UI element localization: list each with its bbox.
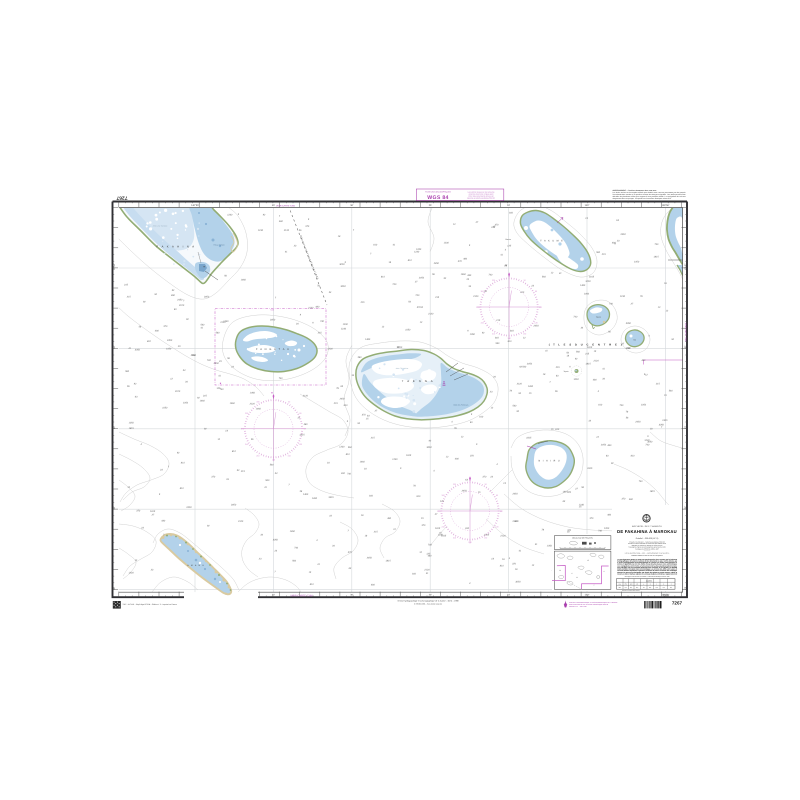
svg-text:215: 215 [123,283,129,286]
svg-text:2450: 2450 [512,493,519,496]
svg-text:1230: 1230 [341,327,347,330]
svg-text:1050: 1050 [634,260,640,263]
svg-text:1815: 1815 [129,427,135,430]
svg-text:240: 240 [442,525,445,528]
svg-text:1050: 1050 [405,329,411,332]
svg-text:215: 215 [360,301,366,304]
svg-text:DE FAKAHINA À MAROKAU: DE FAKAHINA À MAROKAU [617,529,677,534]
svg-text:1460: 1460 [461,273,467,276]
svg-text:215: 215 [555,366,561,369]
svg-text:3050: 3050 [341,285,347,288]
svg-text:1460: 1460 [365,338,371,341]
svg-text:7267: 7267 [116,195,127,201]
svg-text:3050: 3050 [625,347,631,350]
svg-text:2450: 2450 [620,233,627,236]
svg-text:2120: 2120 [174,390,181,393]
svg-text:1050: 1050 [162,406,168,409]
svg-text:215: 215 [370,436,376,439]
svg-text:0,2: 0,2 [663,587,665,589]
svg-text:210: 210 [256,454,259,457]
svg-text:90: 90 [500,510,502,513]
svg-text:© SHOM 1998 – Tous droits rése: © SHOM 1998 – Tous droits réservés [414,602,442,605]
svg-text:F A N G A T A U: F A N G A T A U [256,348,290,351]
svg-text:1815: 1815 [587,467,593,470]
svg-text:1230: 1230 [392,458,398,461]
svg-text:215: 215 [495,319,501,322]
svg-text:2120: 2120 [427,312,434,315]
svg-text:Z0: Z0 [636,584,638,586]
svg-text:VOIR CARTE 7266: VOIR CARTE 7266 [290,594,313,597]
svg-text:16°: 16° [683,345,686,349]
svg-text:Service hydrographique et océa: Service hydrographique et océanographiqu… [398,600,459,603]
svg-text:1815: 1815 [587,346,593,349]
svg-text:15°50': 15°50' [113,263,116,270]
svg-text:2450: 2450 [176,298,183,301]
svg-text:2120: 2120 [178,304,185,307]
svg-text:1815: 1815 [650,490,656,493]
svg-text:3050: 3050 [135,349,141,352]
svg-text:T A E N G A: T A E N G A [402,379,434,383]
svg-text:16°: 16° [113,345,116,349]
svg-text:2450: 2450 [213,362,220,365]
svg-text:1460: 1460 [312,497,318,500]
svg-text:1460: 1460 [256,408,262,411]
svg-text:60: 60 [535,290,537,293]
svg-text:2120: 2120 [516,383,523,386]
svg-text:A M A N U: A M A N U [187,564,205,567]
svg-text:1815: 1815 [589,276,595,279]
svg-text:1230: 1230 [444,241,450,244]
svg-text:210: 210 [453,537,456,540]
svg-text:140°: 140° [585,204,590,207]
svg-text:215: 215 [373,531,379,534]
svg-text:215: 215 [655,382,661,385]
svg-text:1050: 1050 [397,346,403,349]
svg-text:1050: 1050 [641,403,647,406]
svg-text:1460: 1460 [360,461,366,464]
svg-text:210: 210 [492,333,495,336]
svg-text:215: 215 [126,296,132,299]
svg-text:30: 30 [485,483,487,486]
svg-text:POSITIONS GÉOGRAPHIQUES: POSITIONS GÉOGRAPHIQUES [425,190,451,193]
svg-text:Passe Tehere: Passe Tehere [213,244,224,247]
svg-text:1815: 1815 [435,527,441,530]
svg-text:2450: 2450 [634,420,641,423]
svg-text:3050: 3050 [647,441,653,444]
svg-text:————: ———— [644,550,651,552]
svg-text:1050: 1050 [604,527,610,530]
svg-text:1815: 1815 [586,363,592,366]
svg-text:7267 – INT 605 – Dépôt légal 3: 7267 – INT 605 – Dépôt légal 372-98 – Éd… [123,603,177,606]
svg-text:270: 270 [476,306,479,309]
svg-text:215: 215 [333,402,339,405]
svg-text:0,6: 0,6 [649,587,651,589]
svg-text:215: 215 [240,470,246,473]
svg-text:15°50': 15°50' [683,264,686,271]
svg-text:3050: 3050 [626,322,632,325]
svg-text:30: 30 [288,401,290,404]
svg-text:0,3: 0,3 [636,587,638,589]
svg-text:PM: PM [625,584,627,586]
svg-text:2120: 2120 [249,402,256,405]
svg-text:1050: 1050 [585,280,591,283]
svg-text:2120: 2120 [307,307,314,310]
svg-text:1460: 1460 [230,402,236,405]
svg-text:1230: 1230 [579,504,585,507]
svg-text:1050: 1050 [183,402,189,405]
svg-text:60: 60 [496,494,498,497]
svg-text:330: 330 [256,401,259,404]
svg-text:12: 12 [643,587,645,589]
svg-text:0,1: 0,1 [630,587,632,589]
svg-text:2450: 2450 [190,354,197,357]
svg-text:T A K U M E: T A K U M E [540,240,563,243]
svg-text:Heures et hauteurs des marées: Heures et hauteurs des marées [622,590,640,592]
svg-text:VOIR CARTE 7265: VOIR CARTE 7265 [276,204,296,207]
svg-text:1815: 1815 [662,419,668,422]
svg-text:270: 270 [437,510,440,513]
svg-text:90: 90 [539,306,541,309]
svg-text:2450: 2450 [339,397,346,400]
svg-text:3050: 3050 [273,538,279,541]
svg-text:215: 215 [317,332,323,335]
svg-text:60: 60 [299,412,301,415]
svg-text:BM: BM [630,584,632,586]
svg-text:1230: 1230 [327,348,333,351]
svg-text:1460: 1460 [584,292,590,295]
svg-text:1460: 1460 [303,493,309,496]
svg-text:7268: 7268 [270,309,274,312]
svg-text:120: 120 [495,525,498,528]
svg-text:1460: 1460 [290,530,296,533]
svg-text:2120: 2120 [283,229,290,232]
svg-text:240: 240 [481,321,484,324]
svg-text:215: 215 [601,253,607,256]
svg-text:2450: 2450 [185,506,192,509]
svg-text:1050: 1050 [470,333,476,336]
svg-text:3050: 3050 [231,503,237,506]
svg-text:2450: 2450 [366,557,373,560]
svg-text:300: 300 [245,412,248,415]
svg-text:330: 330 [492,279,495,282]
svg-text:ARCHIPEL DES TUAMOTU: ARCHIPEL DES TUAMOTU [632,525,662,528]
svg-text:F A K A H I N A: F A K A H I N A [157,246,196,249]
svg-text:1230: 1230 [620,295,626,298]
svg-text:Raroia: Raroia [505,238,511,241]
svg-text:120: 120 [299,443,302,446]
svg-text:1460: 1460 [528,385,534,388]
svg-text:2450: 2450 [461,489,468,492]
svg-text:120: 120 [534,321,537,324]
svg-text:N I H I R U: N I H I R U [538,459,560,462]
svg-text:150: 150 [523,333,526,336]
svg-text:3050: 3050 [515,581,521,584]
svg-text:2120: 2120 [593,359,600,362]
svg-text:150: 150 [484,537,487,540]
svg-text:( Î L E S D U C E N T R: ( Î L E S D U C E N T R E ) [549,342,623,346]
svg-text:1230: 1230 [223,320,229,323]
svg-text:270: 270 [241,428,244,431]
svg-text:1815: 1815 [328,496,334,499]
svg-text:Échelle 1 : 300 000 (15° S): Échelle 1 : 300 000 (15° S) [636,537,659,540]
svg-text:1460: 1460 [250,391,256,394]
svg-text:1460: 1460 [580,284,586,287]
svg-text:1815: 1815 [406,454,412,457]
svg-text:215: 215 [202,394,208,397]
svg-text:Motu une Tehatea: Motu une Tehatea [153,225,167,228]
svg-text:240: 240 [245,443,248,446]
svg-text:140°50': 140°50' [191,204,199,207]
svg-text:1230: 1230 [258,229,264,232]
svg-text:1230: 1230 [227,214,233,217]
svg-text:0,3: 0,3 [656,587,658,589]
svg-text:1050: 1050 [166,347,172,350]
svg-text:Baie des Pelouses: Baie des Pelouses [454,404,469,407]
svg-text:139°50': 139°50' [662,204,670,207]
svg-text:30: 30 [524,279,526,282]
svg-text:1815: 1815 [150,510,156,513]
svg-text:2450: 2450 [600,444,607,447]
svg-text:90: 90 [304,428,306,431]
svg-text:215: 215 [584,353,590,356]
svg-text:2120: 2120 [237,520,244,523]
svg-text:1050: 1050 [416,248,422,251]
svg-text:3050: 3050 [204,296,210,299]
svg-text:Lieu: Lieu [618,584,621,586]
svg-text:2120: 2120 [472,295,479,298]
svg-text:2120: 2120 [423,568,430,571]
svg-text:1230: 1230 [339,445,345,448]
svg-text:1050: 1050 [129,422,135,425]
svg-text:VOIR CARTE 7268: VOIR CARTE 7268 [684,323,687,343]
svg-text:2450: 2450 [433,262,440,265]
svg-text:1460: 1460 [200,400,206,403]
svg-text:1815: 1815 [299,433,305,436]
svg-text:Tepoto: Tepoto [563,370,568,373]
svg-text:7267: 7267 [672,600,683,605]
svg-text:1230: 1230 [343,323,349,326]
svg-text:Hao: Hao [618,587,621,589]
svg-text:1815: 1815 [441,534,447,537]
svg-text:3050: 3050 [339,263,345,266]
svg-text:1815: 1815 [484,534,490,537]
svg-text:1460: 1460 [241,279,247,282]
svg-text:330: 330 [453,483,456,486]
svg-text:Tauere: Tauere [596,316,601,319]
svg-text:215: 215 [434,296,440,299]
svg-text:2120: 2120 [499,535,506,538]
svg-text:3050: 3050 [270,319,276,322]
svg-text:2450: 2450 [526,363,533,366]
svg-text:1050: 1050 [574,378,580,381]
svg-text:2120: 2120 [302,395,309,398]
svg-text:1230: 1230 [129,572,135,575]
svg-text:WGS 84: WGS 84 [427,195,448,201]
svg-text:7267: 7267 [663,595,669,598]
svg-text:1815: 1815 [654,255,660,258]
svg-text:2450: 2450 [166,339,173,342]
svg-text:3050: 3050 [427,446,433,449]
svg-text:2450: 2450 [533,324,540,327]
svg-text:1815: 1815 [386,559,392,562]
svg-text:1815: 1815 [563,491,569,494]
svg-text:2450: 2450 [418,276,425,279]
svg-text:150: 150 [288,454,291,457]
svg-text:0,4: 0,4 [625,587,627,589]
svg-text:Motu Tiki Vahine: Motu Tiki Vahine [396,367,409,370]
svg-text:300: 300 [442,494,445,497]
svg-text:140°: 140° [585,593,590,596]
svg-text:0,1: 0,1 [670,587,672,589]
svg-text:1050: 1050 [547,545,553,548]
svg-text:1815: 1815 [526,437,532,440]
